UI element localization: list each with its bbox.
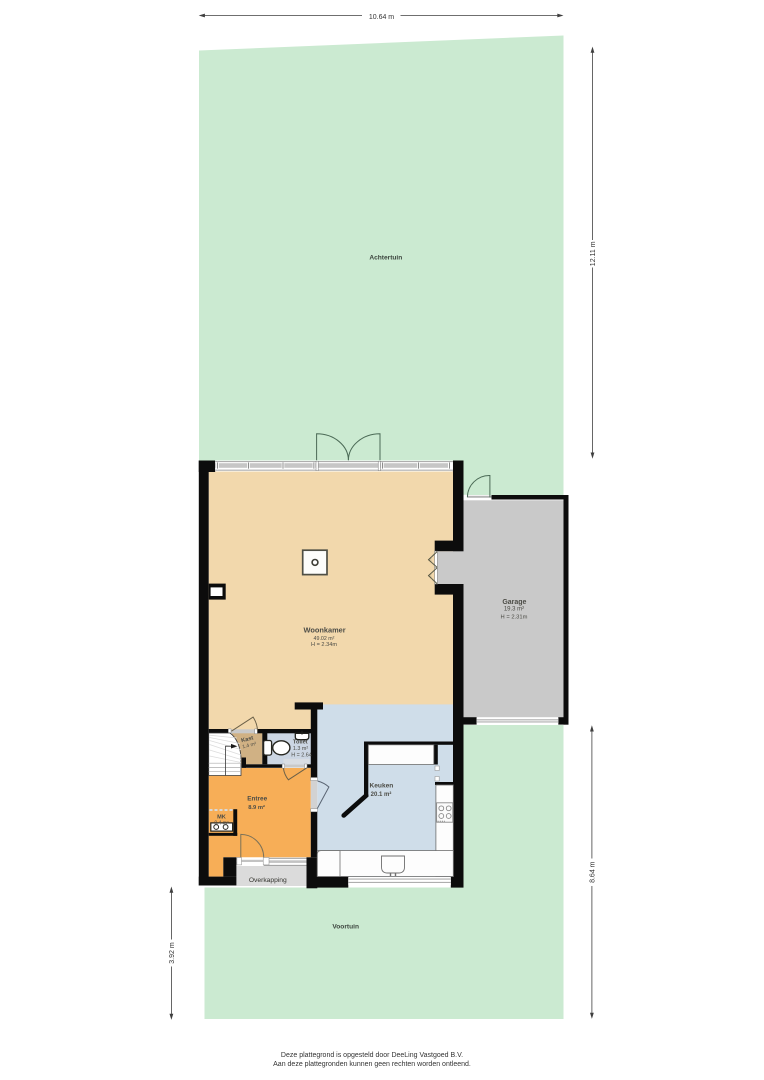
svg-text:Voortuin: Voortuin <box>332 924 359 931</box>
svg-text:12.11 m: 12.11 m <box>590 241 597 266</box>
svg-text:H = 2.64: H = 2.64 <box>291 753 312 759</box>
svg-text:H = 2.31m: H = 2.31m <box>501 614 528 620</box>
svg-text:19.3 m²: 19.3 m² <box>504 606 524 612</box>
svg-text:10.64 m: 10.64 m <box>369 14 394 21</box>
svg-text:Deze plattegrond is opgesteld: Deze plattegrond is opgesteld door DeeLi… <box>281 1052 463 1059</box>
svg-text:1.3 m²: 1.3 m² <box>293 746 308 752</box>
svg-text:Toilet: Toilet <box>293 740 308 746</box>
svg-text:8.9 m²: 8.9 m² <box>248 804 265 811</box>
svg-text:Garage: Garage <box>502 599 526 606</box>
svg-text:Achtertuin: Achtertuin <box>369 254 402 261</box>
svg-text:H = 2.34m: H = 2.34m <box>311 642 337 648</box>
svg-text:Keuken: Keuken <box>369 783 393 790</box>
svg-text:Aan deze plattegronden kunnen: Aan deze plattegronden kunnen geen recht… <box>273 1061 471 1068</box>
svg-text:Entree: Entree <box>247 796 267 803</box>
svg-text:20.1 m²: 20.1 m² <box>371 791 392 798</box>
svg-text:Overkapping: Overkapping <box>249 877 287 884</box>
svg-text:3.92 m: 3.92 m <box>169 942 176 964</box>
svg-text:8.64 m: 8.64 m <box>589 861 596 883</box>
svg-text:Woonkamer: Woonkamer <box>304 626 346 635</box>
svg-text:0.4 m²: 0.4 m² <box>214 821 229 827</box>
